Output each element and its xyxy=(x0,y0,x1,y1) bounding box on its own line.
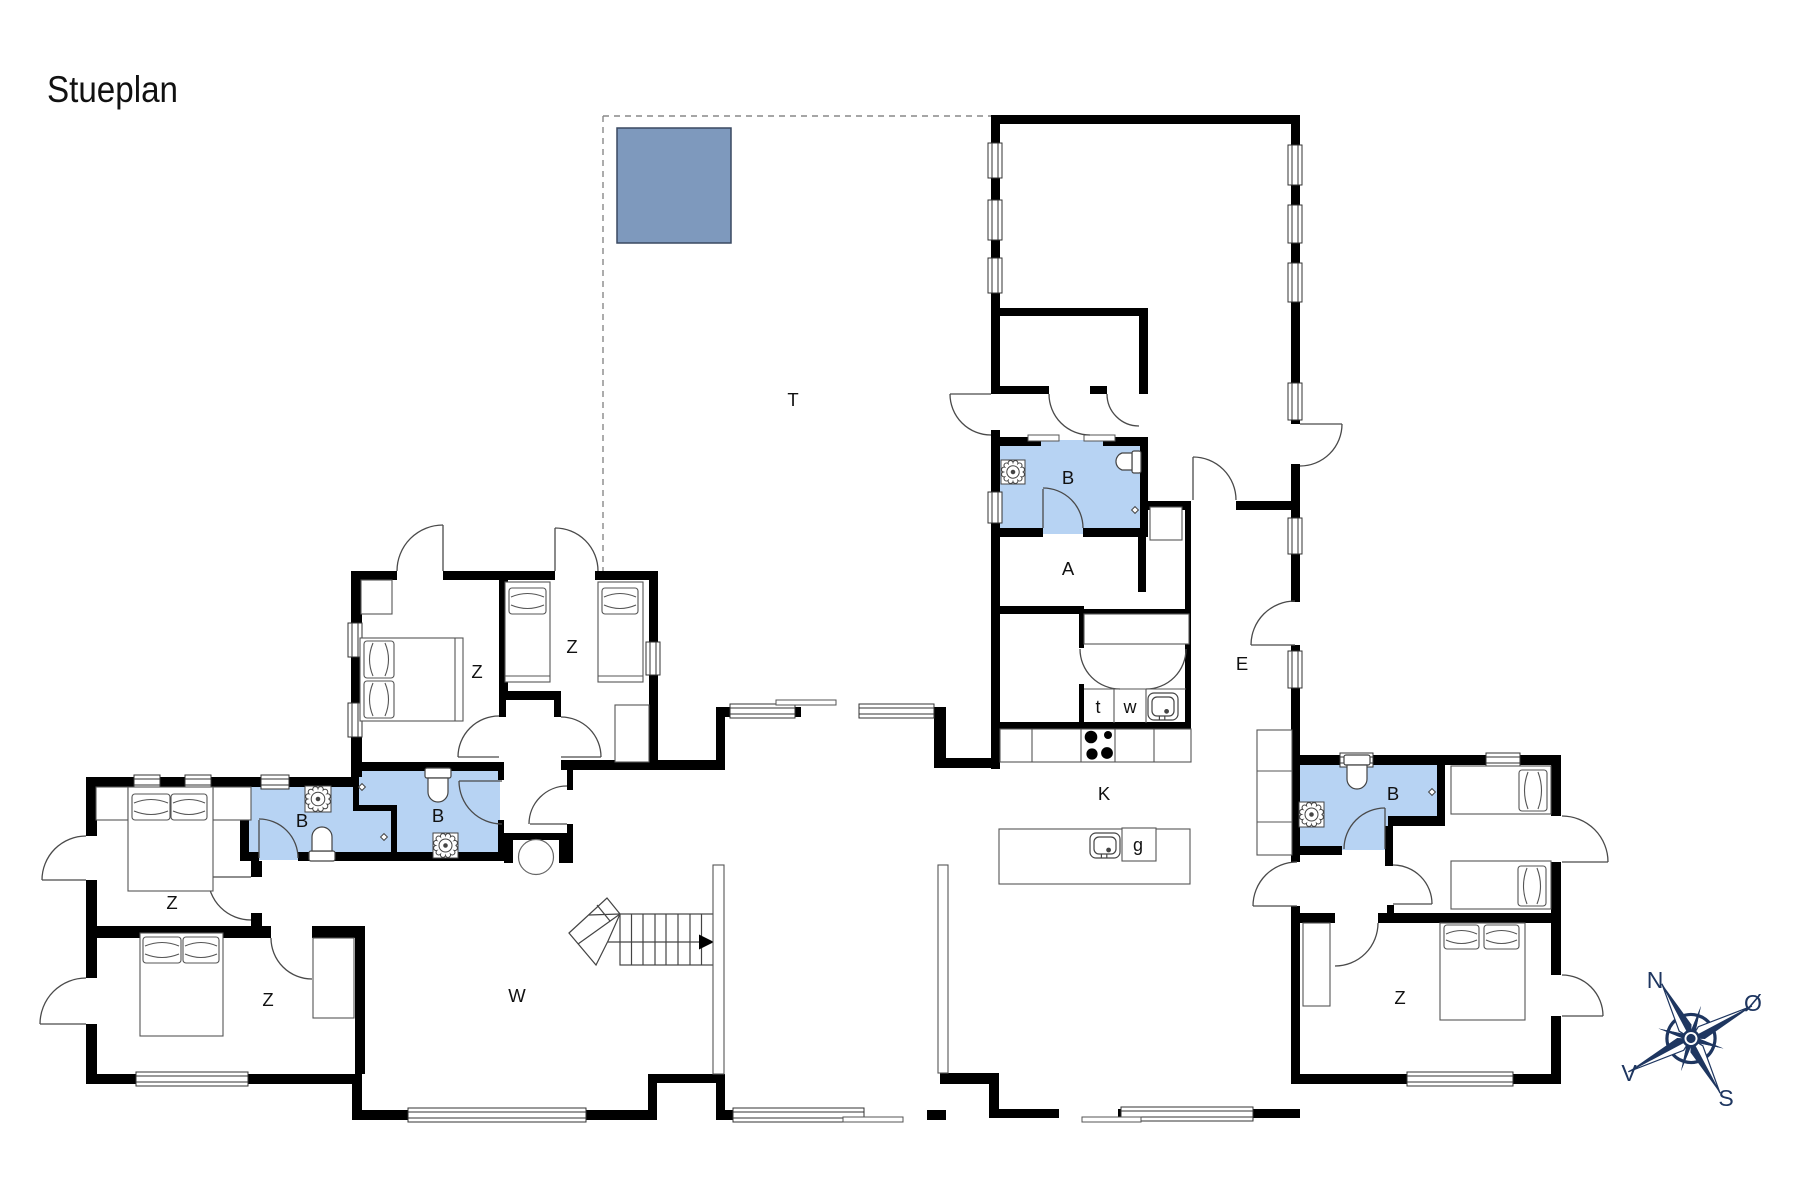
svg-text:B: B xyxy=(296,810,308,831)
svg-text:Z: Z xyxy=(566,636,577,657)
svg-text:B: B xyxy=(1387,783,1399,804)
svg-text:Z: Z xyxy=(262,989,273,1010)
svg-text:w: w xyxy=(1123,697,1138,717)
svg-text:Z: Z xyxy=(1394,987,1405,1008)
svg-text:Z: Z xyxy=(166,892,177,913)
svg-text:S: S xyxy=(1718,1085,1733,1111)
svg-text:Ø: Ø xyxy=(1744,990,1762,1016)
svg-text:B: B xyxy=(1062,467,1074,488)
svg-text:A: A xyxy=(1062,558,1075,579)
svg-text:W: W xyxy=(508,985,526,1006)
svg-text:t: t xyxy=(1095,697,1100,717)
svg-text:V: V xyxy=(1621,1060,1637,1086)
svg-text:Z: Z xyxy=(471,661,482,682)
svg-text:K: K xyxy=(1098,783,1111,804)
svg-text:Stueplan: Stueplan xyxy=(47,69,178,110)
svg-text:N: N xyxy=(1647,967,1664,993)
svg-text:E: E xyxy=(1236,653,1248,674)
svg-text:g: g xyxy=(1133,835,1143,855)
svg-text:B: B xyxy=(432,805,444,826)
svg-text:T: T xyxy=(787,389,798,410)
